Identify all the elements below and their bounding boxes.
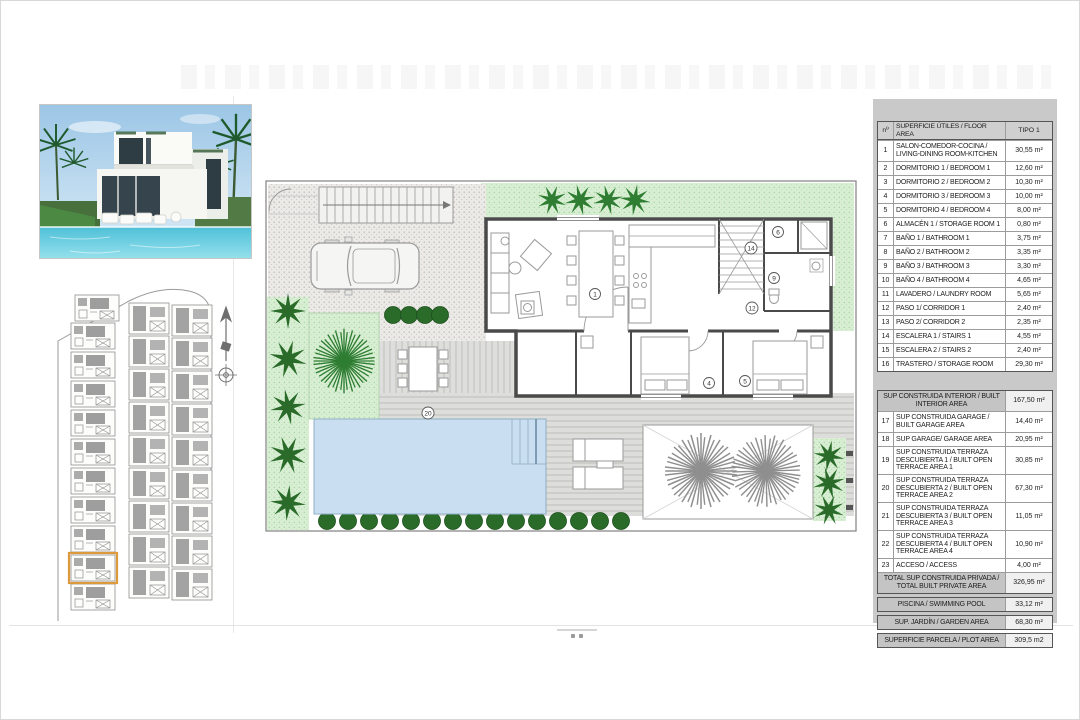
table-row: 1SALON-COMEDOR-COCINA / LIVING-DINING RO… [878,140,1052,161]
area-table-panel: nº SUPERFICIE ÚTILES / FLOOR AREA TIPO 1… [873,99,1057,623]
plot-area-row: SUPERFICIE PARCELA / PLOT AREA309,5 m2 [877,633,1053,648]
room-number: 4 [707,380,711,387]
site-plan [41,269,241,629]
room-number: 1 [593,291,597,298]
garden-area-row: SUP. JARDÍN / GARDEN AREA68,30 m² [877,615,1053,630]
table-header-row: nº SUPERFICIE ÚTILES / FLOOR AREA TIPO 1 [878,122,1052,140]
site-plan-drawing [41,269,241,629]
plan-sheet: 1 4 5 6 9 12 14 20 nº SUPERFICIE ÚTILES … [0,0,1080,720]
garden-right-strip [833,217,854,331]
table-row: 18SUP GARAGE/ GARAGE AREA20,95 m² [878,432,1052,446]
room-number: 6 [776,229,780,236]
north-arrow-icon [221,307,231,361]
table-row: 3DORMITORIO 2 / BEDROOM 210,30 m² [878,175,1052,189]
villa-photo [39,104,252,259]
area-table-main: nº SUPERFICIE ÚTILES / FLOOR AREA TIPO 1… [877,121,1053,372]
table-row: 19SUP CONSTRUIDA TERRAZA DESCUBIERTA 1 /… [878,446,1052,474]
floor-plan: 1 4 5 6 9 12 14 20 [233,96,873,641]
table-row: 4DORMITORIO 3 / BEDROOM 310,00 m² [878,189,1052,203]
pool-area-row: PISCINA / SWIMMING POOL33,12 m² [877,597,1053,612]
table-row: 22SUP CONSTRUIDA TERRAZA DESCUBIERTA 4 /… [878,530,1052,558]
swimming-pool [314,419,546,514]
area-table-built: SUP CONSTRUIDA INTERIOR / BUILT INTERIOR… [877,390,1053,594]
table-row: 5DORMITORIO 4 / BEDROOM 48,00 m² [878,203,1052,217]
room-number: 14 [747,245,755,252]
site-units-column-1 [71,295,119,610]
header-tipo: TIPO 1 [1006,122,1052,139]
header-num: nº [878,122,894,139]
room-number: 5 [743,378,747,385]
built-interior-row: SUP CONSTRUIDA INTERIOR / BUILT INTERIOR… [878,391,1052,411]
villa-photo-art [40,105,251,258]
car-icon [311,237,419,295]
site-units-column-3 [172,305,212,600]
table-row: 6ALMACÉN 1 / STORAGE ROOM 10,80 m² [878,217,1052,231]
site-units-column-2 [129,303,169,598]
table-row: 21SUP CONSTRUIDA TERRAZA DESCUBIERTA 3 /… [878,502,1052,530]
table-row: 16TRASTERO / STORAGE ROOM29,30 m² [878,357,1052,371]
room-number: 12 [748,305,756,312]
palm-courtyard [643,425,813,519]
garden-top-strip [481,183,854,217]
table-row: 12PASO 1/ CORRIDOR 12,40 m² [878,301,1052,315]
table-row: 2DORMITORIO 1 / BEDROOM 112,60 m² [878,161,1052,175]
table-row: 8BAÑO 2 / BATHROOM 23,35 m² [878,245,1052,259]
floor-plan-drawing: 1 4 5 6 9 12 14 20 [233,96,873,641]
table-row: 17SUP CONSTRUIDA GARAGE / BUILT GARAGE A… [878,411,1052,432]
table-row: 15ESCALERA 2 / STAIRS 22,40 m² [878,343,1052,357]
room-number: 9 [772,275,776,282]
table-row: 20SUP CONSTRUIDA TERRAZA DESCUBIERTA 2 /… [878,474,1052,502]
table-row: 10BAÑO 4 / BATHROOM 44,65 m² [878,273,1052,287]
room-number: 20 [424,410,432,417]
table-row: 23ACCESO / ACCESS4,00 m² [878,558,1052,572]
table-gap [877,372,1053,390]
watermark-band [181,65,1057,89]
table-row: 14ESCALERA 1 / STAIRS 14,55 m² [878,329,1052,343]
table-row: 7BAÑO 1 / BATHROOM 13,75 m² [878,231,1052,245]
table-row: 9BAÑO 3 / BATHROOM 33,30 m² [878,259,1052,273]
header-label: SUPERFICIE ÚTILES / FLOOR AREA [894,122,1006,139]
total-private-row: TOTAL SUP CONSTRUIDA PRIVADA / TOTAL BUI… [878,572,1052,593]
photo-pool [40,227,251,258]
table-row: 11LAVADERO / LAUNDRY ROOM5,65 m² [878,287,1052,301]
table-row: 13PASO 2/ CORRIDOR 22,35 m² [878,315,1052,329]
